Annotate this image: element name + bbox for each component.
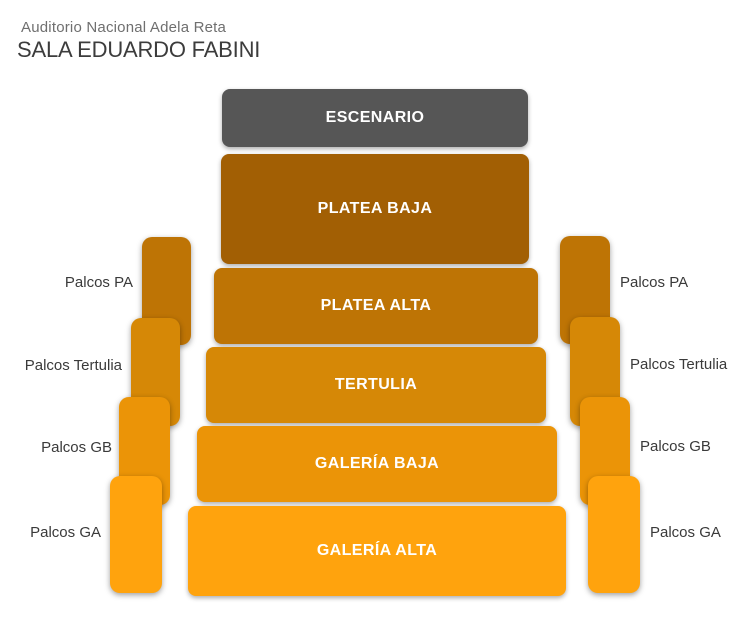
- section-tertulia-label: TERTULIA: [335, 376, 417, 394]
- palco-left-pa-label: Palcos PA: [65, 274, 133, 292]
- stage: ESCENARIO: [222, 89, 528, 147]
- palco-right-ga[interactable]: [588, 476, 640, 593]
- section-tertulia[interactable]: TERTULIA: [206, 347, 546, 423]
- venue-name: Auditorio Nacional Adela Reta: [21, 19, 226, 36]
- palco-left-ga-label: Palcos GA: [30, 524, 101, 542]
- palco-left-ga[interactable]: [110, 476, 162, 593]
- section-platea-alta[interactable]: PLATEA ALTA: [214, 268, 538, 344]
- seating-map: Auditorio Nacional Adela Reta SALA EDUAR…: [0, 0, 750, 620]
- palco-right-tertulia-label: Palcos Tertulia: [630, 356, 727, 374]
- palco-left-gb-label: Palcos GB: [41, 439, 112, 457]
- palco-left-tertulia-label: Palcos Tertulia: [25, 357, 122, 375]
- section-galeria-alta-label: GALERÍA ALTA: [317, 542, 437, 560]
- stage-label: ESCENARIO: [326, 109, 425, 127]
- section-galeria-baja-label: GALERÍA BAJA: [315, 455, 439, 473]
- section-platea-alta-label: PLATEA ALTA: [321, 297, 432, 315]
- palco-right-pa-label: Palcos PA: [620, 274, 688, 292]
- palco-right-ga-label: Palcos GA: [650, 524, 721, 542]
- section-galeria-alta[interactable]: GALERÍA ALTA: [188, 506, 566, 596]
- palco-right-gb-label: Palcos GB: [640, 438, 711, 456]
- section-galeria-baja[interactable]: GALERÍA BAJA: [197, 426, 557, 502]
- section-platea-baja-label: PLATEA BAJA: [318, 200, 433, 218]
- hall-title: SALA EDUARDO FABINI: [17, 37, 260, 63]
- section-platea-baja[interactable]: PLATEA BAJA: [221, 154, 529, 264]
